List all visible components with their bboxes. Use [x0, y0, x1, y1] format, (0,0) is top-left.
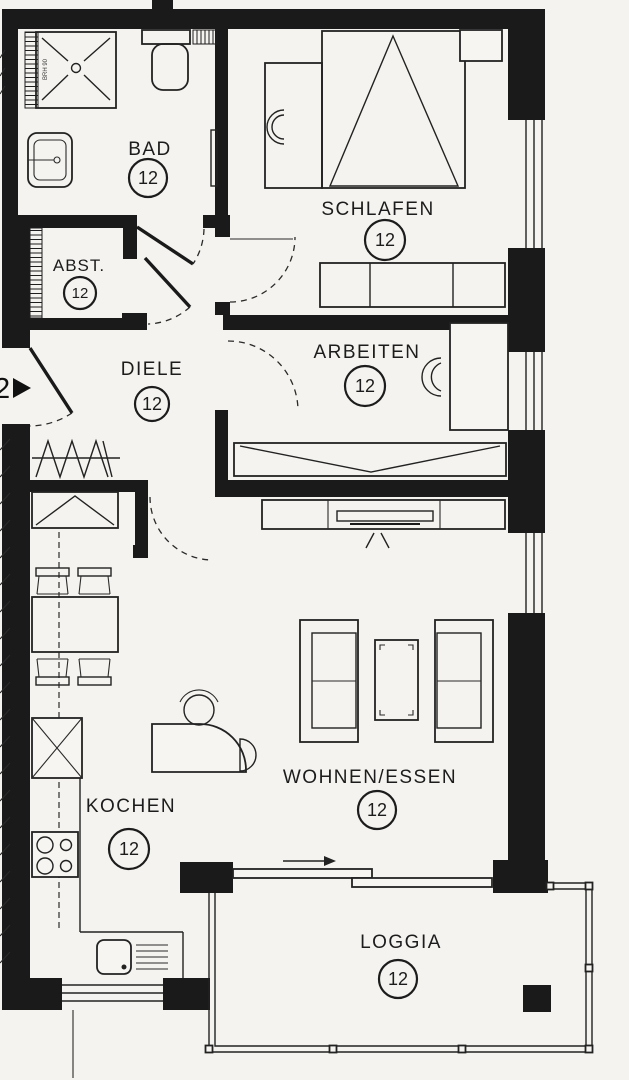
dining-table	[32, 597, 118, 652]
desk-chair	[184, 695, 214, 725]
hall-cabinet	[32, 492, 118, 528]
tv-legs	[366, 533, 389, 548]
door-schlafen	[230, 237, 295, 302]
loggia-structure	[73, 883, 593, 1079]
wohnen-furniture	[152, 620, 493, 772]
room-label-loggia: LOGGIA 12	[360, 932, 442, 998]
walls	[2, 0, 548, 1010]
window-arbeiten	[526, 352, 542, 430]
sofa-left	[300, 620, 358, 742]
window-kochen	[62, 985, 163, 1001]
room-label-kochen: KOCHEN 12	[86, 796, 176, 869]
svg-text:BAD: BAD	[128, 139, 172, 160]
floor-plan-drawing: BRH 90 2	[0, 0, 629, 1080]
shower-drain	[72, 64, 81, 73]
dining-set	[32, 568, 118, 685]
svg-text:WOHNEN/ESSEN: WOHNEN/ESSEN	[283, 767, 457, 788]
svg-text:ARBEITEN: ARBEITEN	[313, 342, 420, 363]
svg-text:DIELE: DIELE	[121, 359, 183, 380]
coffee-table	[375, 640, 418, 720]
daybed	[234, 443, 506, 476]
dresser	[320, 263, 505, 307]
stove	[32, 832, 78, 877]
office-desk	[450, 323, 508, 430]
room-label-abst: ABST. 12	[53, 256, 105, 309]
svg-text:12: 12	[119, 839, 139, 859]
coat-rack	[32, 441, 120, 477]
svg-text:LOGGIA: LOGGIA	[360, 932, 442, 953]
nightstand	[460, 30, 502, 61]
sink	[97, 940, 168, 974]
bad-fixtures	[28, 30, 217, 187]
tv	[337, 511, 433, 521]
loggia-railing	[209, 883, 592, 1052]
room-label-schlafen: SCHLAFEN 12	[321, 199, 434, 260]
window-schlafen	[526, 120, 542, 248]
room-label-wohnen-essen: WOHNEN/ESSEN 12	[283, 767, 457, 829]
svg-text:12: 12	[72, 285, 89, 302]
work-desk	[152, 690, 256, 772]
tv-lowboard	[262, 500, 505, 548]
svg-text:12: 12	[367, 800, 387, 820]
duct-hatch	[193, 30, 217, 44]
toilet	[142, 30, 190, 90]
room-label-arbeiten: ARBEITEN 12	[313, 342, 420, 406]
refrigerator	[32, 718, 82, 778]
entrance-door: 2	[0, 348, 72, 426]
dining-chair	[78, 659, 111, 685]
entrance-arrow-icon	[13, 378, 31, 398]
dressing-desk	[265, 63, 322, 188]
door-abst	[145, 258, 190, 324]
door-arbeiten	[228, 341, 298, 411]
dining-chair	[36, 568, 69, 594]
svg-text:SCHLAFEN: SCHLAFEN	[321, 199, 434, 220]
window-sill-label: BRH 90	[43, 58, 49, 80]
window-sill-strip-abst	[30, 228, 42, 318]
bed	[322, 31, 465, 188]
door-wohnen	[150, 497, 213, 560]
sliding-door-loggia	[233, 856, 492, 887]
dining-chair	[78, 568, 111, 594]
railing-posts	[206, 883, 593, 1053]
schlafen-furniture	[265, 30, 505, 307]
svg-text:ABST.: ABST.	[53, 256, 105, 275]
svg-text:12: 12	[138, 168, 158, 188]
svg-text:12: 12	[142, 394, 162, 414]
washbasin	[28, 133, 72, 187]
svg-text:12: 12	[388, 969, 408, 989]
loggia-column	[523, 985, 551, 1012]
window-wohnen	[526, 533, 542, 613]
svg-text:12: 12	[355, 376, 375, 396]
svg-text:KOCHEN: KOCHEN	[86, 796, 176, 817]
floor-plan: BRH 90 2	[0, 0, 629, 1080]
dining-chair	[36, 659, 69, 685]
svg-text:12: 12	[375, 230, 395, 250]
room-label-bad: BAD 12	[128, 139, 172, 197]
drainer	[136, 945, 168, 969]
faucet	[54, 157, 60, 163]
entrance-unit-marker: 2	[0, 373, 10, 405]
room-label-diele: DIELE 12	[121, 359, 183, 421]
sofa-right	[435, 620, 493, 742]
slide-arrow-icon	[324, 856, 336, 866]
office-chair	[422, 358, 441, 396]
